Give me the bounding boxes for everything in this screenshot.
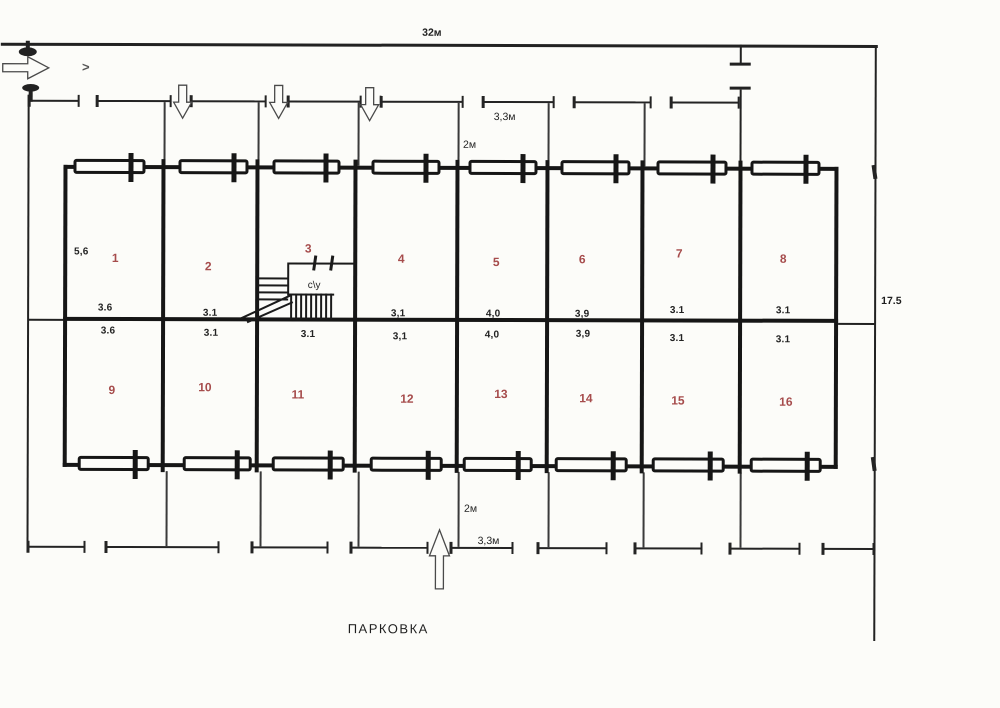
extension-line [457,103,459,166]
dim-tick [872,165,878,179]
room-number-5: 5 [493,255,500,269]
building-right-wall [834,167,839,469]
room-number-2: 2 [205,259,212,273]
dim-label: 3.1 [670,333,685,344]
stair-tread [258,291,288,293]
middle-line-extension-left [28,319,63,321]
extension-line [357,472,359,547]
window-mullion [128,153,133,182]
room-number-1: 1 [112,251,119,265]
window-mullion [323,154,328,183]
dim-label: 4,0 [485,329,500,340]
stair-tread [305,293,307,319]
stair-tread [300,293,302,319]
entrance-arrow-right-icon [3,55,51,81]
window-icon [370,457,443,472]
plan-drawing: > 1 2 3 4 5 6 7 8 9 10 11 12 13 14 15 16… [0,0,1000,708]
extension-line [739,473,741,548]
window-mullion [231,153,236,182]
window-icon [555,457,628,472]
window-icon [272,456,345,471]
walk-depth-top-label: 2м [463,139,476,151]
bay-width-top-label: 3,3м [494,111,516,123]
window-mullion [613,154,618,183]
closet-wall-top [288,262,356,264]
extension-line [257,102,259,165]
stair-tread [258,284,288,286]
dim-segment [27,546,84,548]
partition-wall [738,161,743,474]
gate-symbol-line [740,45,742,65]
extension-line [642,472,644,547]
dim-segment [671,101,739,103]
stair-tread [290,293,292,319]
dim-label: 3.6 [101,325,116,336]
dim-segment [97,100,171,102]
dim-segment [251,546,327,548]
entrance-arrow-down-icon [360,88,380,122]
stair-tread [315,294,317,320]
window-icon [750,161,820,176]
window-mullion [235,450,240,479]
room-number-3: 3 [305,241,312,255]
survey-pin-icon [21,84,41,102]
window-icon [78,456,150,471]
entrance-arrow-up-icon [428,530,450,590]
dim-label: 3,1 [391,308,406,319]
window-mullion [328,451,333,480]
room-number-7: 7 [676,246,683,260]
window-mullion [516,451,521,480]
dim-segment [729,548,799,550]
middle-line-extension-right [838,323,875,325]
dim-segment [822,548,873,550]
window-icon [272,159,340,174]
room-number-11: 11 [292,387,305,401]
direction-chevron: > [82,59,90,74]
window-icon [371,160,440,175]
bay-width-bottom-label: 3,3м [478,535,500,547]
entrance-arrow-down-icon [173,85,193,119]
window-icon [468,160,537,175]
dim-segment [483,101,554,103]
floor-plan-scan: > 1 2 3 4 5 6 7 8 9 10 11 12 13 14 15 16… [0,0,1000,708]
dim-segment [537,547,606,549]
window-icon [73,159,145,174]
dim-segment [350,547,427,549]
room-number-13: 13 [494,387,507,401]
window-icon [560,160,630,175]
window-icon [463,457,533,472]
stair-tread [258,277,288,279]
dim-segment [288,100,361,102]
overall-width-label: 32м [422,27,441,39]
dim-segment [574,101,651,103]
extension-line [547,472,549,547]
dim-tick [871,457,877,471]
partition-wall [545,160,550,473]
extension-line [643,103,645,166]
extension-line [259,471,261,546]
dim-label: 3,9 [576,329,591,340]
dim-label: 3,1 [393,331,408,342]
room-number-10: 10 [198,380,211,394]
stair-tread [295,293,297,319]
dim-label: 3.1 [203,308,218,319]
dim-label: 3.1 [776,305,791,316]
dim-segment [634,547,701,549]
dim-label: 3,9 [575,309,590,320]
dim-label: 3.1 [776,334,791,345]
partition-wall [353,160,358,473]
dim-segment [381,101,463,103]
window-icon [183,456,252,471]
parking-label: ПАРКОВКА [348,621,429,636]
room-number-4: 4 [398,252,405,266]
gate-symbol-bar [730,63,751,66]
window-mullion [520,154,525,183]
dim-label: 5,6 [74,246,89,257]
entrance-arrow-down-icon [269,85,289,119]
window-icon [656,160,727,175]
room-number-12: 12 [400,392,413,406]
extension-line [165,471,167,546]
partition-wall [455,160,460,473]
room-number-15: 15 [671,393,684,407]
room-number-9: 9 [109,383,116,397]
dim-label: 3.1 [670,305,685,316]
site-boundary-top-line [1,43,878,48]
dim-segment [105,546,218,548]
walk-depth-bottom-label: 2м [464,503,477,515]
stair-tread [320,294,322,320]
window-mullion [710,155,715,184]
dim-label: 3.1 [204,328,219,339]
window-mullion [708,452,713,481]
window-icon [178,159,248,174]
window-mullion [423,154,428,183]
stair-tread [325,294,327,320]
utility-room-label: c\y [308,280,321,291]
dim-label: 3.1 [301,329,316,340]
extension-line [163,102,165,165]
window-icon [652,457,725,472]
window-mullion [611,451,616,480]
dim-label: 4,0 [486,308,501,319]
window-mullion [133,450,138,479]
extension-line [457,472,459,547]
stair-tread [330,294,332,320]
room-number-16: 16 [779,395,792,409]
window-mullion [803,155,808,184]
window-icon [750,458,822,473]
partition-wall [640,160,645,473]
building-middle-wall [63,317,838,323]
window-mullion [426,451,431,480]
dim-segment [450,547,512,549]
extension-line [547,103,549,166]
gate-symbol-line [739,90,741,167]
room-number-8: 8 [780,252,787,266]
partition-wall [161,159,166,472]
stair-tread [310,294,312,320]
dim-segment [191,100,266,102]
room-number-6: 6 [579,252,586,266]
dim-label: 3.6 [98,302,113,313]
overall-depth-label: 17.5 [881,295,901,307]
window-mullion [805,452,810,481]
room-number-14: 14 [579,391,592,405]
